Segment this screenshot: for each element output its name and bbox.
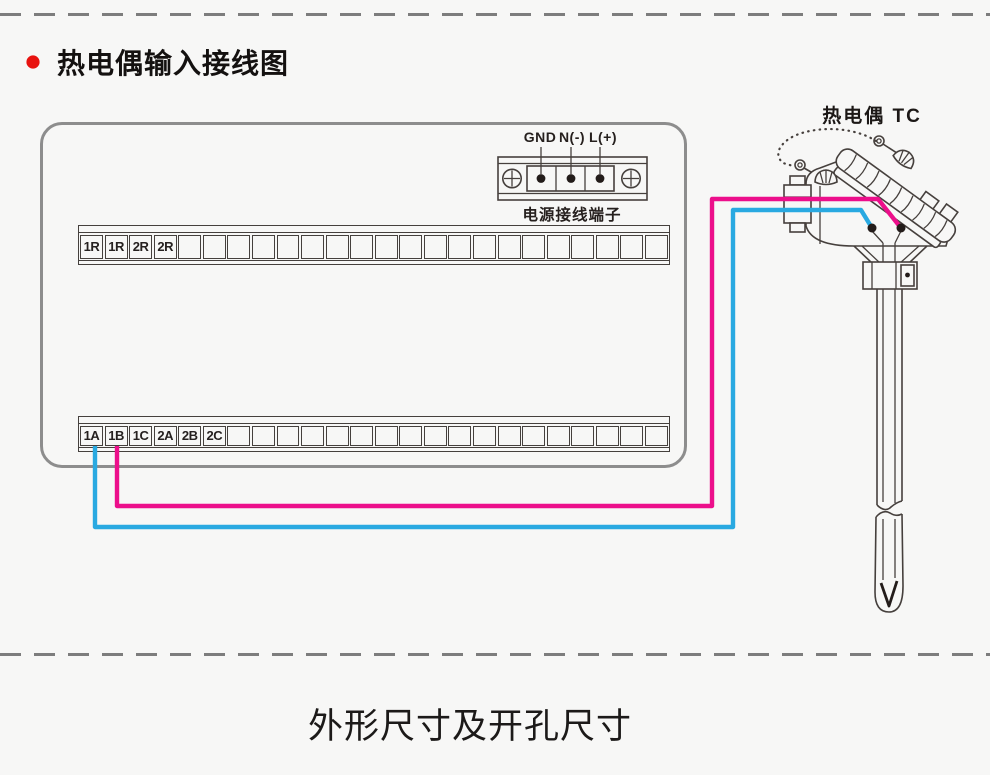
- terminal-cell: 2A: [154, 426, 177, 446]
- strip-top-rail: [79, 232, 669, 233]
- terminal-cell: [252, 426, 275, 446]
- terminal-cell: [399, 235, 422, 259]
- terminal-cell: 2B: [178, 426, 201, 446]
- terminal-cell: [375, 426, 398, 446]
- terminal-cell: [571, 426, 594, 446]
- terminal-cell: 1B: [105, 426, 128, 446]
- terminal-cell: [498, 235, 521, 259]
- terminal-cell: [522, 235, 545, 259]
- terminal-cell: [620, 235, 643, 259]
- terminal-cell: [301, 426, 324, 446]
- terminal-cell: [227, 426, 250, 446]
- terminal-strip-bottom: 1A1B1C2A2B2C: [78, 416, 670, 452]
- terminal-cell: [448, 426, 471, 446]
- terminal-cell: [227, 235, 250, 259]
- terminal-cell: 1C: [129, 426, 152, 446]
- terminal-cell: [375, 235, 398, 259]
- head-terminal-positive: [897, 224, 906, 233]
- terminal-cells-row: 1A1B1C2A2B2C: [80, 426, 668, 446]
- terminal-cell: [547, 426, 570, 446]
- wing-nut-icon: [815, 170, 837, 185]
- eye-bolt-icon: [874, 136, 900, 155]
- terminal-cell: [277, 235, 300, 259]
- hex-fitting: [784, 176, 811, 232]
- thermocouple-head-body: [806, 159, 950, 246]
- terminal-cell: [571, 235, 594, 259]
- strip-bottom-rail: [79, 260, 669, 261]
- terminal-cell: [498, 426, 521, 446]
- terminal-cell: [350, 426, 373, 446]
- head-terminal-negative: [868, 224, 877, 233]
- dashed-divider-top: [0, 13, 990, 16]
- terminal-cell: [473, 426, 496, 446]
- terminal-cell: [326, 426, 349, 446]
- bullet-icon: [26, 55, 40, 69]
- strip-bottom-rail: [79, 447, 669, 448]
- pin-label-neutral: N(-): [559, 129, 585, 145]
- terminal-cell: [203, 235, 226, 259]
- pin-label-gnd: GND: [524, 129, 557, 145]
- terminal-cell: [301, 235, 324, 259]
- terminal-cell: [424, 426, 447, 446]
- terminal-cell: 1R: [105, 235, 128, 259]
- terminal-strip-top: 1R1R2R2R: [78, 225, 670, 265]
- mounting-collar: [863, 262, 917, 289]
- terminal-cell: [620, 426, 643, 446]
- terminal-cell: [350, 235, 373, 259]
- terminal-cell: [547, 235, 570, 259]
- footer-heading: 外形尺寸及开孔尺寸: [308, 698, 632, 749]
- cap-chain: [778, 129, 876, 166]
- terminal-cell: [522, 426, 545, 446]
- terminal-cell: [178, 235, 201, 259]
- terminal-cell: [596, 235, 619, 259]
- terminal-cell: 1A: [80, 426, 103, 446]
- terminal-cell: [448, 235, 471, 259]
- terminal-cell: [596, 426, 619, 446]
- thermocouple-illustration: [778, 129, 966, 612]
- section-title-row: 热电偶输入接线图: [26, 42, 289, 82]
- probe-tip-mark: [881, 581, 897, 606]
- wing-nut-icon: [892, 146, 918, 171]
- terminal-cell: [252, 235, 275, 259]
- terminal-cell: [277, 426, 300, 446]
- section-title: 热电偶输入接线图: [57, 42, 289, 82]
- terminal-cell: 2C: [203, 426, 226, 446]
- terminal-cell: [473, 235, 496, 259]
- terminal-cell: [424, 235, 447, 259]
- strip-top-rail: [79, 423, 669, 424]
- terminal-cell: 2R: [129, 235, 152, 259]
- terminal-cell: [645, 426, 668, 446]
- terminal-cell: [399, 426, 422, 446]
- terminal-cells-row: 1R1R2R2R: [80, 235, 668, 259]
- terminal-cell: [326, 235, 349, 259]
- thermocouple-cap: [828, 136, 966, 252]
- terminal-cell: 2R: [154, 235, 177, 259]
- eye-bolt-icon: [795, 160, 818, 176]
- dashed-divider-bottom: [0, 653, 990, 656]
- terminal-cell: 1R: [80, 235, 103, 259]
- pin-label-live: L(+): [589, 129, 617, 145]
- terminal-cell: [645, 235, 668, 259]
- power-terminal-caption: 电源接线端子: [522, 203, 621, 225]
- thermocouple-label: 热电偶 TC: [822, 101, 922, 128]
